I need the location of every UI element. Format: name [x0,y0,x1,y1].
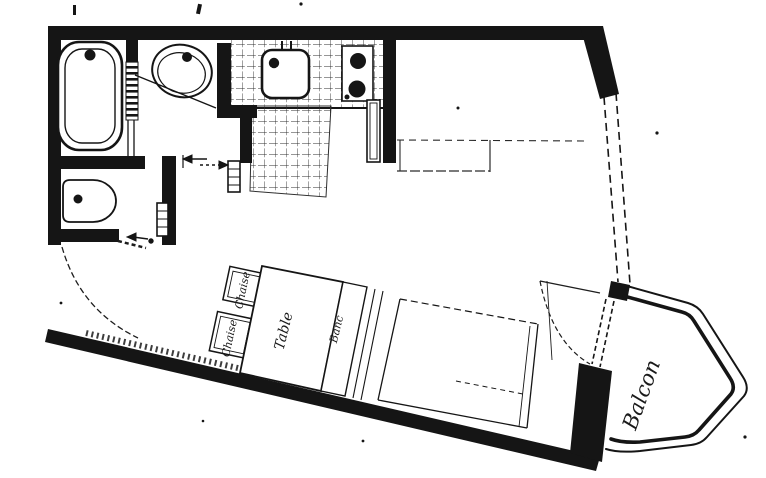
radiator-hall [157,203,168,236]
tub-faucet-dot [85,50,96,61]
kitchen-floor-tiles [250,106,331,197]
arrow-left-icon [127,233,136,241]
burner-top [350,53,366,69]
bed [378,299,538,428]
stove-knob-dot [345,95,350,100]
floor-plan-drawing: Chaise Chaise Table Banc Ba [0,0,766,478]
kitchen-right-wall [383,38,396,163]
arrow-right-icon [219,161,228,169]
kitchen-sink [262,41,309,98]
balcony-label: Balcon [617,356,665,433]
balcony-door-swing [540,281,600,364]
wc-bottom-wall [49,229,119,242]
right-window-wall [592,93,630,367]
bath-divider-top [126,40,138,63]
arrow-left-icon [183,155,192,163]
basin-kitchen-wall [217,43,231,110]
radiator-kitchen [228,161,240,192]
toilet [63,180,116,222]
right-lower-wall [570,363,612,462]
closet-outline [397,140,586,172]
hall-passage-arrows [183,155,228,169]
entrance-door-swing [62,241,146,338]
toilet-flush-dot [74,195,83,204]
basin-faucet-dot [182,52,192,62]
washbasin [135,39,217,108]
bath-wc-wall [49,156,145,169]
sink-faucet-dot [269,58,279,68]
top-wall [48,26,593,40]
balcony: Balcon [606,286,747,452]
wc-door-arrow [127,233,153,243]
top-right-diagonal-wall [580,26,619,99]
burner-bottom [349,81,366,98]
bath-divider-hatched [126,62,138,120]
stove [342,46,373,101]
bathtub [58,42,122,150]
fridge-or-counter [367,100,380,162]
floor-plan-page: Chaise Chaise Table Banc Ba [0,0,766,478]
kitchen-floor-left-wall [240,105,252,163]
